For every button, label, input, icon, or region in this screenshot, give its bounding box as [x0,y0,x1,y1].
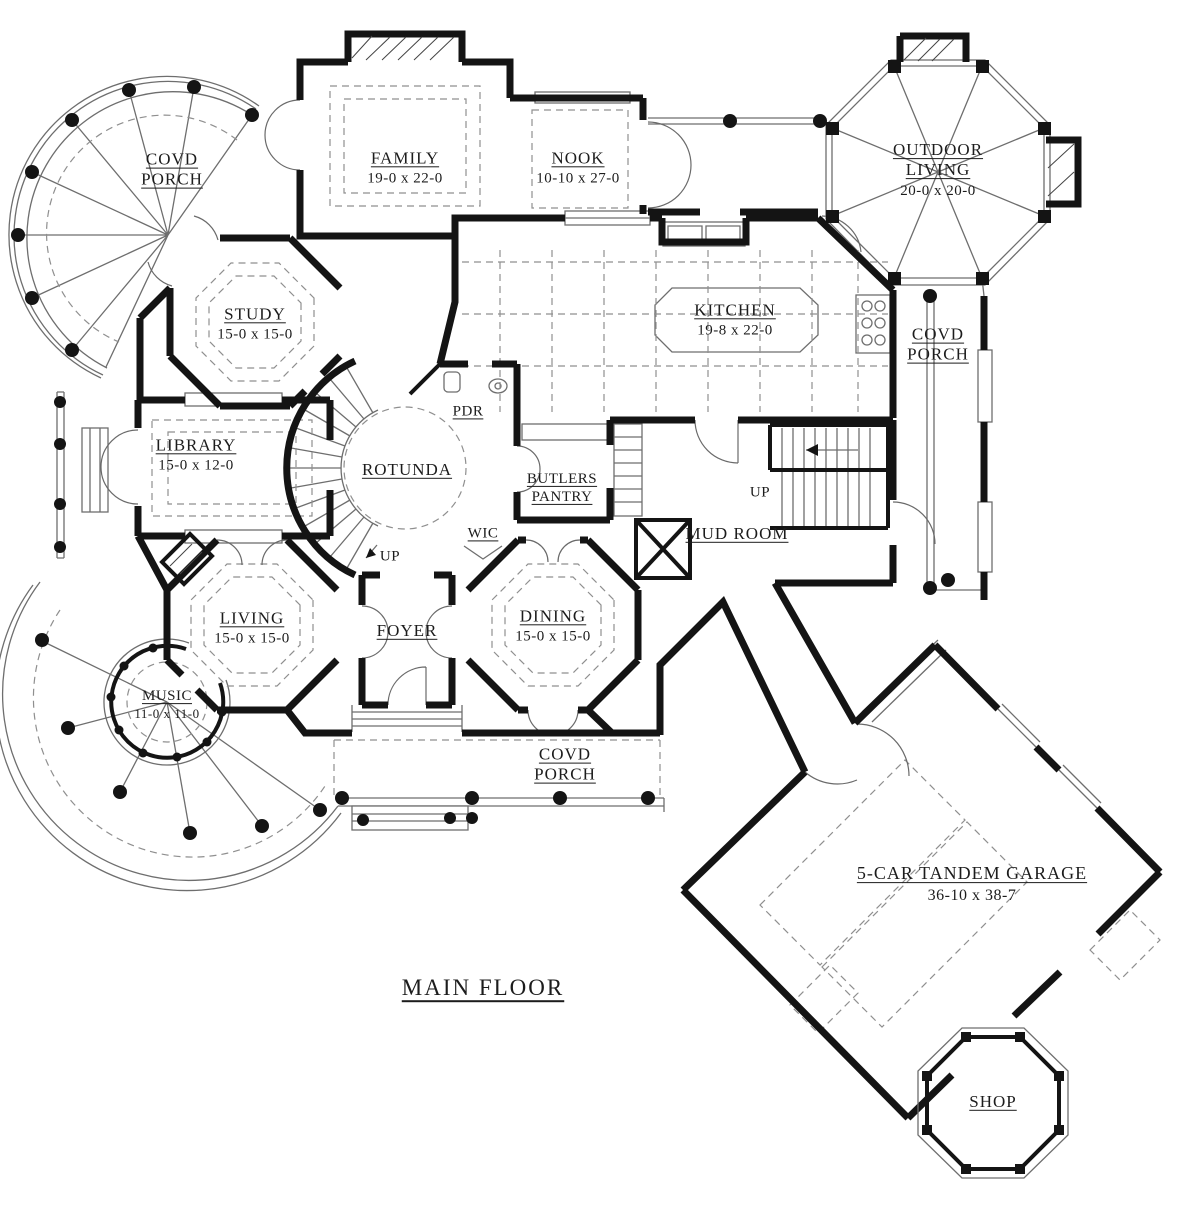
room-label-wic: WIC [468,523,499,542]
room-label-covd-porch-nw: COVD PORCH [132,150,212,191]
room-label-rotunda: ROTUNDA [362,460,452,480]
room-label-study: STUDY 15-0 x 15-0 [217,304,293,343]
room-label-music: MUSIC 11-0 x 11-0 [134,686,199,722]
room-label-covd-porch-east: COVD PORCH [900,325,976,366]
plan-title: MAIN FLOOR [402,974,564,1002]
room-label-foyer: FOYER [377,621,438,641]
floor-plan: COVD PORCH FAMILY 19-0 x 22-0 NOOK 10-10… [0,0,1200,1212]
room-label-garage: 5-CAR TANDEM GARAGE 36-10 x 38-7 [822,863,1122,905]
room-label-library: LIBRARY 15-0 x 12-0 [156,435,237,474]
room-label-butlers-pantry: BUTLERS PANTRY [519,470,605,506]
room-label-family: FAMILY 19-0 x 22-0 [367,148,443,187]
room-label-living: LIVING 15-0 x 15-0 [214,608,290,647]
room-label-dining: DINING 15-0 x 15-0 [515,606,591,645]
label-up-main-stairs: UP [750,482,770,501]
room-label-covd-porch-south: COVD PORCH [525,745,605,786]
room-label-mud-room: MUD ROOM [686,524,789,544]
room-label-pdr: PDR [453,401,484,420]
room-label-nook: NOOK 10-10 x 27-0 [536,148,620,187]
room-label-kitchen: KITCHEN 19-8 x 22-0 [694,300,776,339]
room-label-outdoor-living: OUTDOOR LIVING 20-0 x 20-0 [886,140,990,200]
room-label-shop: SHOP [969,1092,1016,1112]
label-up-rotunda: UP [380,546,400,565]
